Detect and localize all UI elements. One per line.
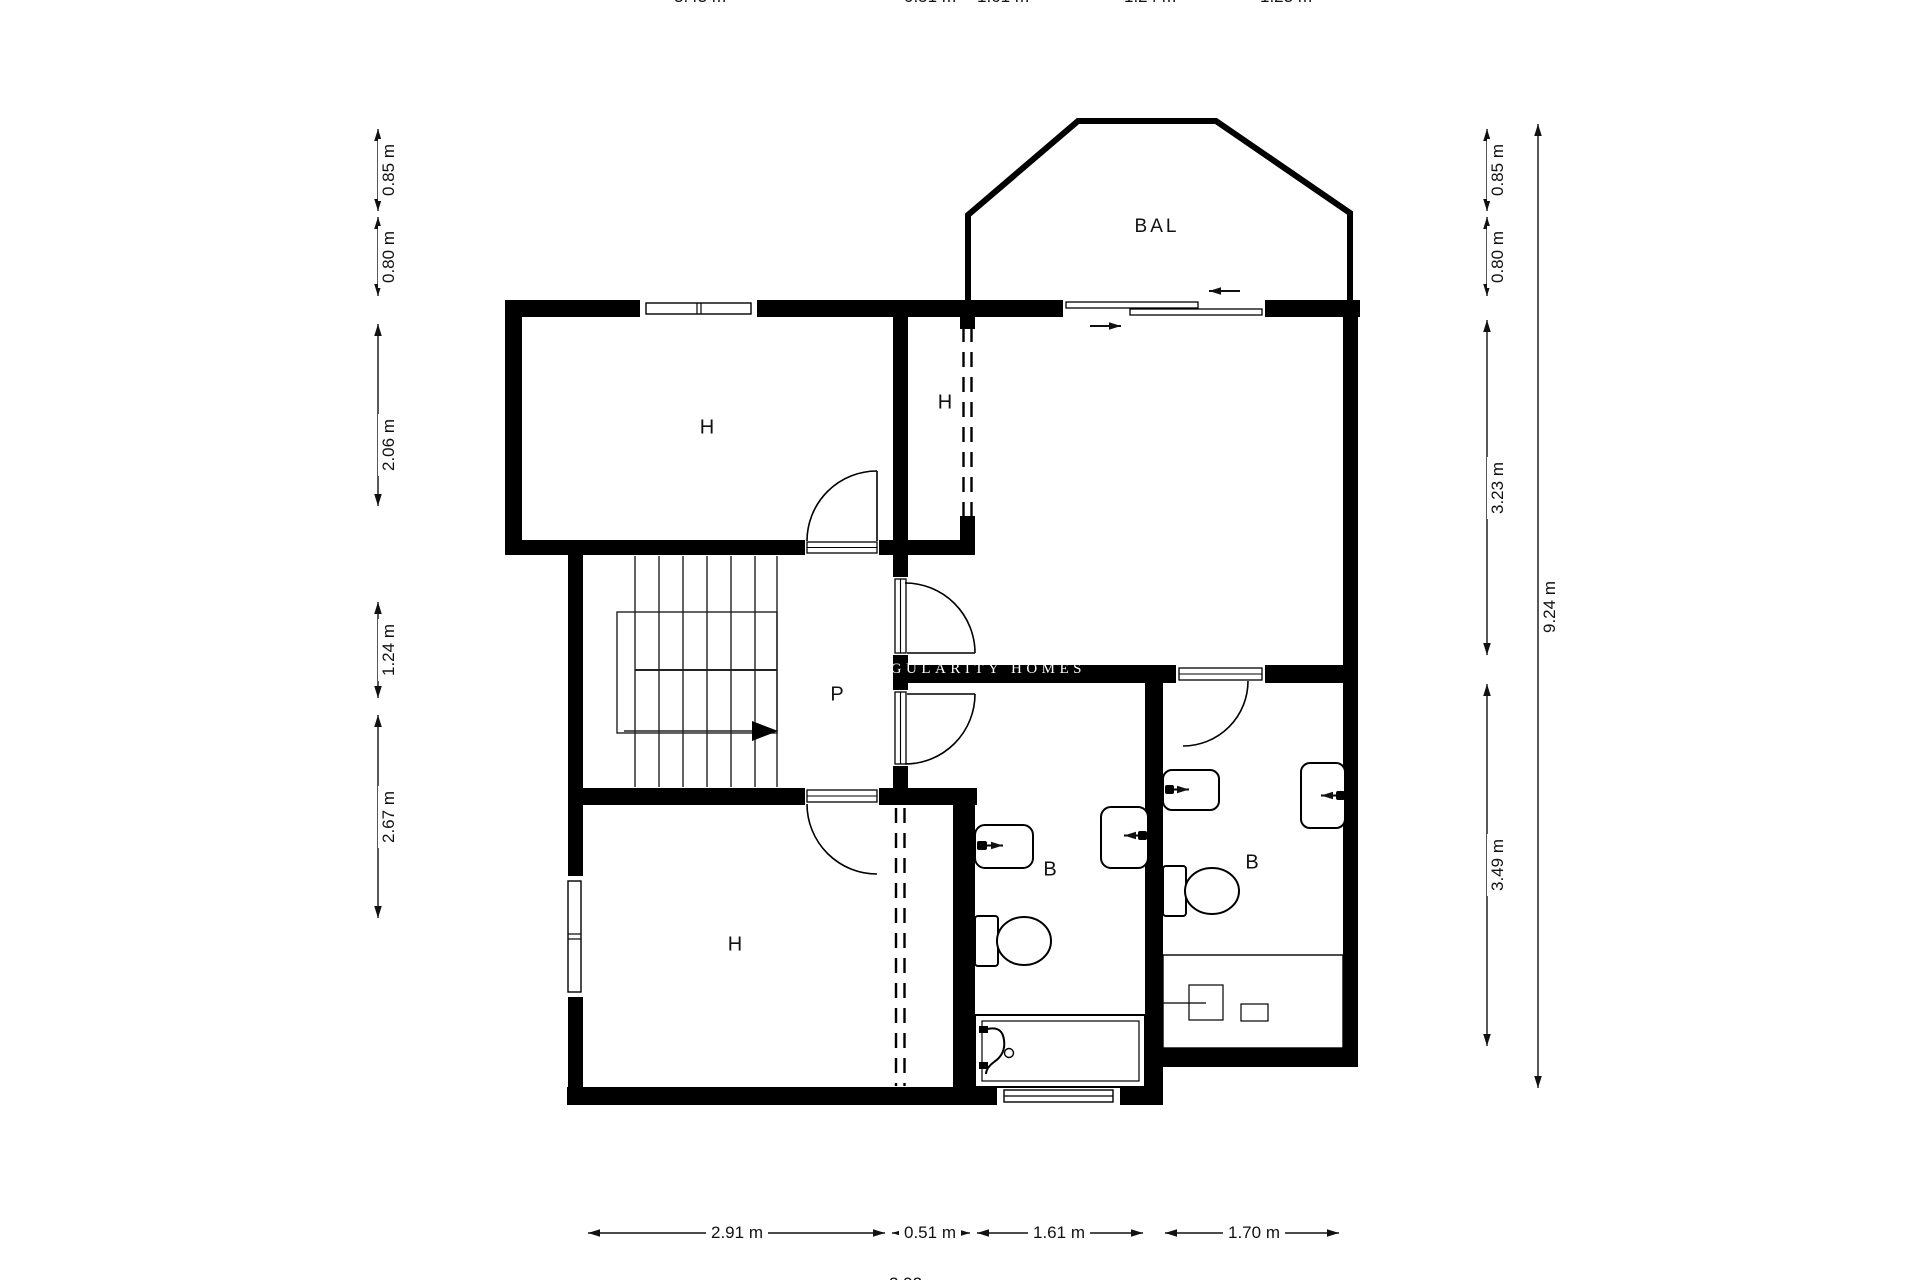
toilet-bowl (1185, 868, 1239, 914)
dimension-label-clipped: 0.51 m (899, 0, 961, 8)
wall (1145, 678, 1163, 1105)
room-label-hallway: P (830, 684, 843, 707)
dimension-label: 1.61 m (1028, 1222, 1090, 1244)
wall (1343, 308, 1358, 1067)
toilet-bowl (997, 917, 1051, 965)
hookup (1145, 998, 1154, 1008)
dimension-label-total: 9.24 m (1539, 576, 1561, 638)
dimension-label: 3.23 m (1487, 457, 1509, 519)
faucet-icon (1138, 831, 1147, 840)
faucet-icon (1165, 785, 1174, 794)
watermark: SINGULARITY HOMES (853, 661, 1086, 678)
wall (960, 315, 975, 329)
wall (893, 545, 908, 579)
dimension-label: 0.85 m (378, 139, 400, 201)
bathtub-tap-handle (979, 1062, 988, 1069)
wall (567, 1087, 997, 1105)
floor-plan-drawing (0, 0, 1920, 1280)
staircase (617, 556, 777, 787)
sliding-panel (1130, 309, 1262, 315)
room-label-bedroom-top-left: H (700, 417, 714, 440)
wall (505, 300, 642, 317)
wall (953, 788, 975, 1090)
sliding-panel (1066, 302, 1198, 308)
wall (505, 300, 522, 555)
window (646, 303, 751, 314)
balcony-outline (968, 121, 1350, 301)
dimension-label-clipped: 1.61 m (972, 0, 1034, 8)
dimension-label: 1.70 m (1223, 1222, 1285, 1244)
dimension-label-clipped: 1.23 m (1255, 0, 1317, 8)
wall (1120, 1087, 1163, 1105)
wall (893, 300, 908, 545)
window (568, 881, 581, 992)
door-arc (807, 471, 877, 541)
toilet-tank (975, 916, 998, 966)
toilet-tank (1163, 866, 1186, 916)
dimension-label: 1.24 m (378, 619, 400, 681)
walls (505, 300, 1360, 1105)
dimension-label-clipped: 2.92 m (884, 1273, 946, 1280)
door-arc (905, 583, 975, 653)
wall (568, 540, 583, 878)
faucet-icon (1336, 791, 1345, 800)
room-label-bathroom-left: B (1043, 859, 1056, 882)
dimension-label: 2.67 m (378, 786, 400, 848)
dimension-label: 0.80 m (378, 226, 400, 288)
wall (1163, 1048, 1358, 1067)
counter (1163, 955, 1343, 1048)
room-label-bedroom-bottom-left: H (728, 934, 742, 957)
wall (877, 540, 975, 555)
dimension-label-clipped: 1.24 m (1119, 0, 1181, 8)
door-arc (807, 804, 877, 874)
balcony-sliding-door (1063, 291, 1265, 326)
dimension-label: 0.80 m (1487, 226, 1509, 288)
dimension-label: 3.49 m (1487, 834, 1509, 896)
room-label-balcony: BAL (1135, 216, 1180, 238)
stair-direction-arrow (752, 721, 778, 741)
small-appliance (1241, 1004, 1268, 1021)
dimension-label: 2.06 m (378, 414, 400, 476)
door-arc (1183, 681, 1248, 746)
wall (568, 788, 807, 805)
dimension-label: 2.91 m (706, 1222, 768, 1244)
dimension-label-clipped: 3.43 m (669, 0, 731, 8)
floor-plan: SINGULARITY HOMES BAL H H H P B B 0.85 m… (0, 0, 1920, 1280)
dimension-label: 0.85 m (1487, 139, 1509, 201)
bathtub-tap-handle (979, 1026, 988, 1033)
faucet-icon (977, 841, 987, 850)
dimension-label: 0.51 m (899, 1222, 961, 1244)
wall (505, 540, 807, 555)
room-label-bathroom-right: B (1245, 852, 1258, 875)
door-arc (905, 694, 975, 764)
wall (755, 300, 1068, 317)
wall (960, 516, 975, 542)
room-label-bedroom-top-right: H (938, 392, 952, 415)
